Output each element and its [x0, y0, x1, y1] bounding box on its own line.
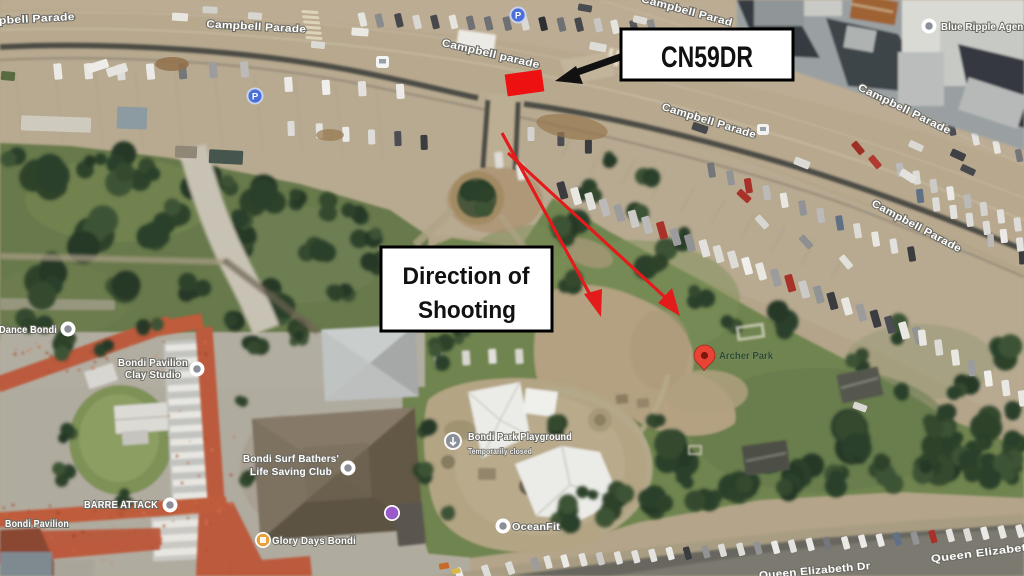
- svg-text:CN59DR: CN59DR: [661, 41, 753, 74]
- svg-text:Shooting: Shooting: [418, 297, 516, 324]
- svg-text:Dance Bondi: Dance Bondi: [0, 325, 57, 336]
- svg-text:Clay Studio: Clay Studio: [125, 370, 181, 381]
- svg-text:P: P: [252, 91, 259, 102]
- svg-text:P: P: [515, 10, 522, 21]
- svg-text:Bondi Surf Bathers': Bondi Surf Bathers': [243, 454, 339, 465]
- svg-text:OceanFit: OceanFit: [512, 522, 561, 533]
- svg-text:Glory Days Bondi: Glory Days Bondi: [272, 536, 356, 547]
- svg-text:Bondi Pavilion: Bondi Pavilion: [5, 519, 69, 530]
- svg-text:Bondi Park Playground: Bondi Park Playground: [468, 431, 572, 443]
- svg-text:Archer Park: Archer Park: [719, 351, 773, 362]
- svg-text:Temporarily closed: Temporarily closed: [468, 446, 532, 456]
- svg-text:Direction of: Direction of: [403, 263, 531, 290]
- svg-text:Blue Ripple Agenc: Blue Ripple Agenc: [941, 22, 1024, 33]
- svg-text:BARRE ATTACK: BARRE ATTACK: [84, 500, 159, 511]
- svg-text:Life Saving Club: Life Saving Club: [250, 467, 332, 478]
- svg-text:Bondi Pavilion: Bondi Pavilion: [118, 358, 188, 369]
